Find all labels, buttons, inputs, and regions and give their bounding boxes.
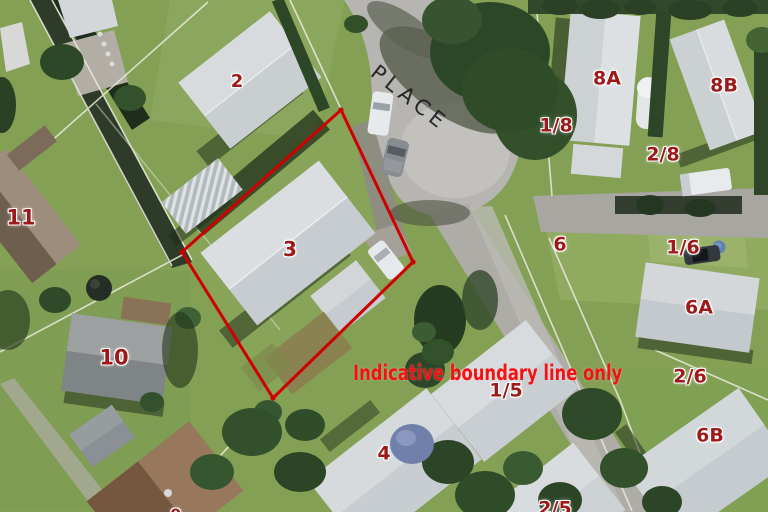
parcel-label-2-8: 2/8 (646, 146, 679, 165)
parcel-label-2-6: 2/6 (673, 368, 706, 387)
parcel-label-8b: 8B (710, 77, 738, 96)
house-roof-11 (0, 125, 81, 283)
parcel-label-6: 6 (553, 236, 566, 255)
dark-tank (86, 275, 112, 301)
parcel-label-3: 3 (283, 239, 297, 259)
parcel-label-1-5: 1/5 (489, 382, 522, 401)
parcel-label-10: 10 (99, 348, 128, 369)
parcel-label-1-6: 1/6 (666, 239, 699, 258)
parcel-label-2: 2 (231, 73, 244, 91)
parcel-label-2-5: 2/5 (538, 500, 571, 512)
parcel-label-6b: 6B (696, 427, 724, 446)
parcel-label-9-partial: 9 (170, 507, 181, 512)
parcel-label-11: 11 (6, 208, 35, 229)
parcel-label-1-8: 1/8 (539, 117, 572, 136)
aerial-map: PLACE Indicative boundary line only 2 11… (0, 0, 768, 512)
parcel-label-8a: 8A (593, 70, 621, 89)
parcel-label-4: 4 (377, 445, 390, 464)
boundary-disclaimer-text: Indicative boundary line only (353, 361, 622, 385)
parcel-label-6a: 6A (685, 299, 713, 318)
